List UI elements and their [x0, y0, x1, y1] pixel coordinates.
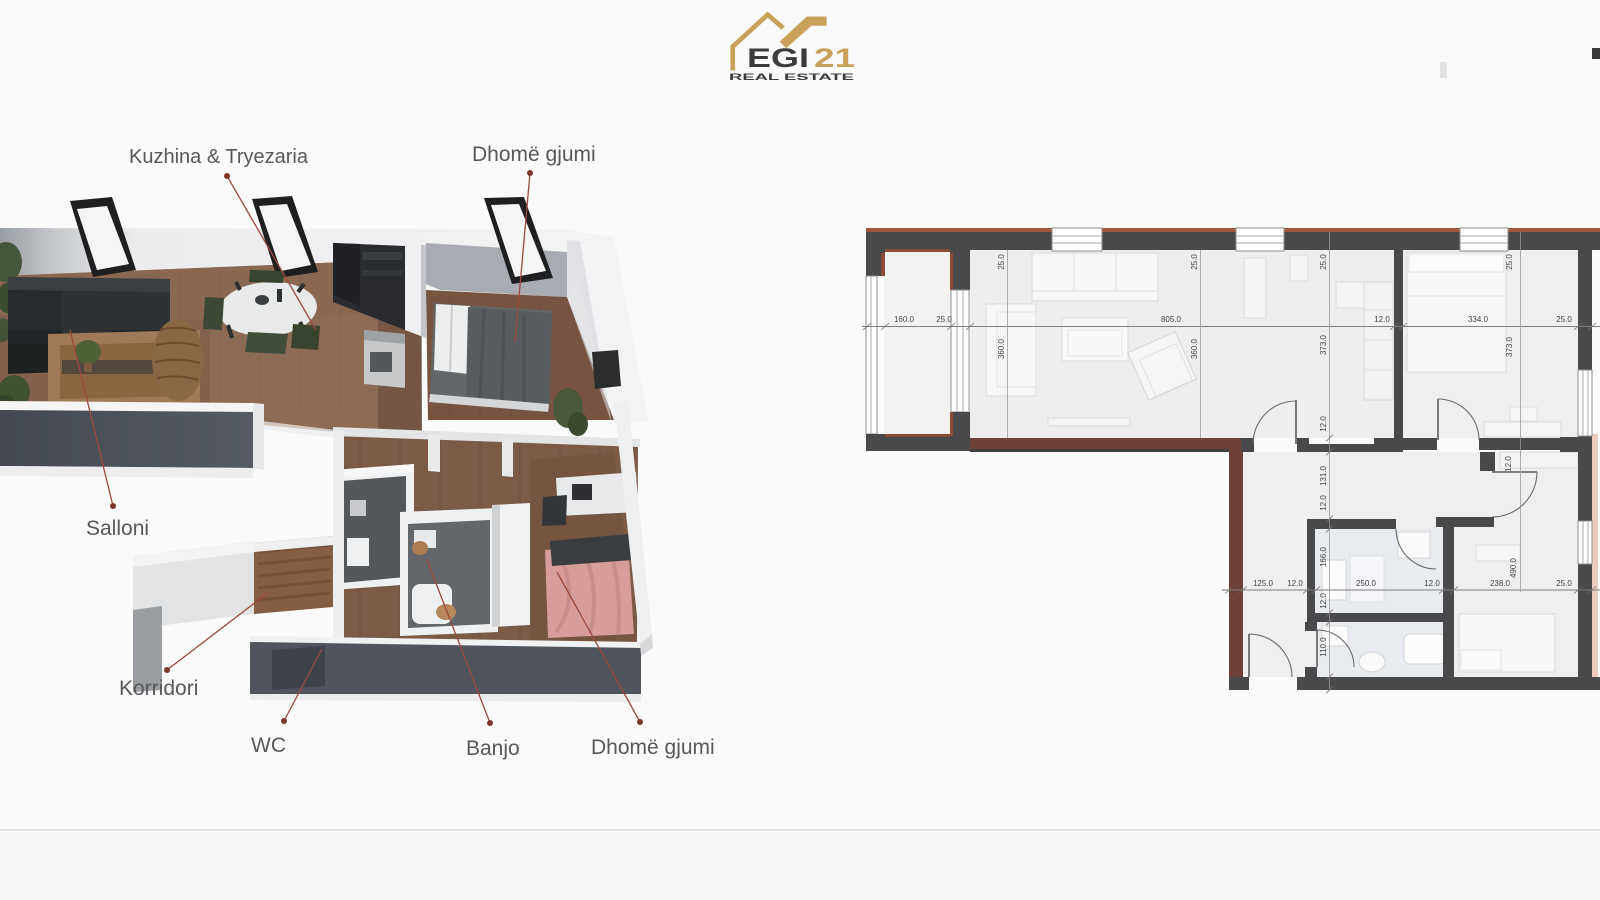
svg-text:12.0: 12.0: [1424, 579, 1440, 588]
svg-text:373.0: 373.0: [1505, 336, 1514, 357]
svg-text:25.0: 25.0: [1190, 254, 1199, 270]
svg-text:160.0: 160.0: [894, 315, 915, 324]
svg-text:25.0: 25.0: [1505, 254, 1514, 270]
svg-text:110.0: 110.0: [1319, 637, 1328, 657]
svg-text:250.0: 250.0: [1356, 579, 1377, 588]
svg-text:21: 21: [814, 43, 855, 73]
svg-text:238.0: 238.0: [1490, 579, 1511, 588]
svg-text:334.0: 334.0: [1468, 315, 1489, 324]
svg-text:12.0: 12.0: [1319, 593, 1328, 609]
svg-text:12.0: 12.0: [1319, 495, 1328, 511]
svg-text:25.0: 25.0: [1556, 315, 1572, 324]
svg-text:REAL ESTATE: REAL ESTATE: [729, 72, 854, 83]
svg-text:Banjo: Banjo: [466, 737, 520, 760]
svg-text:12.0: 12.0: [1319, 416, 1328, 432]
svg-text:805.0: 805.0: [1161, 315, 1182, 324]
svg-text:166.0: 166.0: [1319, 546, 1328, 567]
svg-text:490.0: 490.0: [1509, 557, 1518, 578]
svg-text:360.0: 360.0: [1190, 338, 1199, 359]
svg-text:131.0: 131.0: [1319, 465, 1328, 486]
svg-text:25.0: 25.0: [997, 254, 1006, 270]
svg-text:12.0: 12.0: [1374, 315, 1390, 324]
svg-text:25.0: 25.0: [1556, 579, 1572, 588]
svg-text:WC: WC: [251, 734, 286, 757]
svg-text:Korridori: Korridori: [119, 677, 198, 700]
svg-text:EGI: EGI: [747, 43, 809, 73]
svg-text:25.0: 25.0: [936, 315, 952, 324]
svg-text:Salloni: Salloni: [86, 517, 149, 540]
svg-text:125.0: 125.0: [1253, 579, 1274, 588]
svg-text:373.0: 373.0: [1319, 334, 1328, 355]
svg-text:Kuzhina & Tryezaria: Kuzhina & Tryezaria: [129, 146, 309, 168]
svg-text:12.0: 12.0: [1287, 579, 1303, 588]
svg-text:12.0: 12.0: [1504, 456, 1513, 472]
svg-text:360.0: 360.0: [997, 338, 1006, 359]
svg-text:25.0: 25.0: [1319, 254, 1328, 270]
svg-text:Dhomë gjumi: Dhomë gjumi: [591, 736, 715, 759]
svg-text:Dhomë gjumi: Dhomë gjumi: [472, 143, 596, 166]
